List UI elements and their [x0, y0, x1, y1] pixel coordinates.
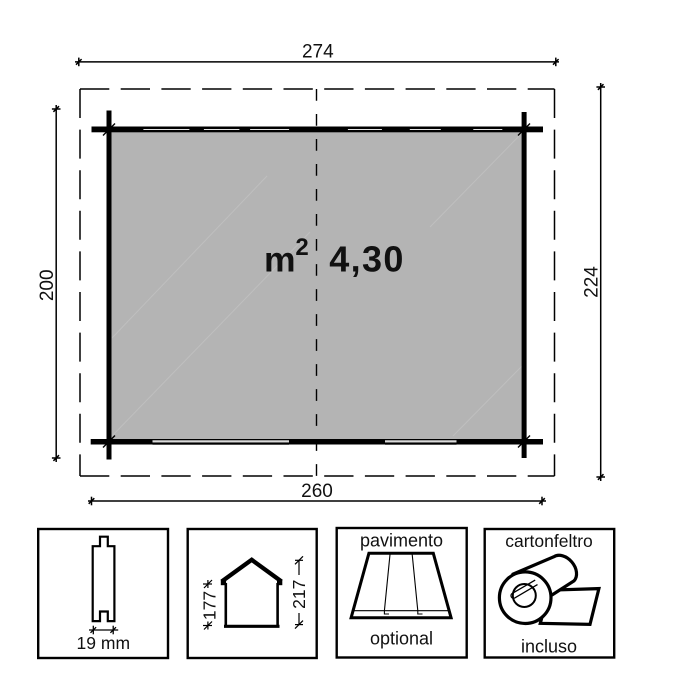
svg-text:224: 224 [582, 266, 603, 298]
svg-text:2: 2 [295, 234, 308, 261]
svg-text:177: 177 [199, 591, 219, 620]
svg-text:optional: optional [370, 628, 433, 648]
svg-text:274: 274 [302, 42, 334, 63]
svg-text:217: 217 [289, 580, 309, 609]
svg-text:4,30: 4,30 [329, 238, 405, 279]
svg-text:19 mm: 19 mm [77, 633, 130, 653]
svg-text:200: 200 [37, 269, 58, 301]
svg-text:260: 260 [301, 481, 333, 502]
svg-text:m: m [264, 239, 296, 279]
svg-text:cartonfeltro: cartonfeltro [505, 531, 593, 551]
svg-text:incluso: incluso [521, 637, 577, 657]
svg-text:pavimento: pavimento [360, 530, 443, 550]
